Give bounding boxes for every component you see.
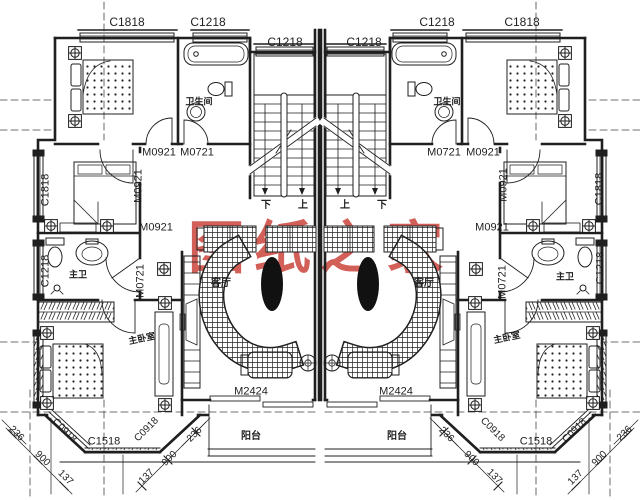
window-code: C1218 bbox=[419, 16, 454, 28]
stair-direction-up: 上 bbox=[340, 201, 350, 211]
stair-direction-down: 下 bbox=[261, 201, 271, 211]
window-code: C1218 bbox=[41, 255, 52, 287]
door-code: M0921 bbox=[499, 168, 510, 202]
dim-value: 900 bbox=[33, 450, 52, 469]
stair-direction-up: 上 bbox=[298, 201, 308, 211]
dim-value: 137 bbox=[485, 468, 504, 487]
door-code: M0921 bbox=[142, 148, 176, 159]
window-code: C0918 bbox=[50, 417, 78, 445]
room-label-balcony: 阳台 bbox=[241, 432, 261, 442]
stair-direction-down: 下 bbox=[377, 201, 387, 211]
door-code: M0921 bbox=[475, 223, 509, 234]
door-code: M2424 bbox=[379, 387, 413, 398]
label-layer: C1818C1218C1218C1218C1218C1818C1818C1818… bbox=[0, 0, 640, 500]
window-code: C0918 bbox=[478, 416, 506, 444]
window-code: C1518 bbox=[88, 437, 120, 448]
dim-value: 236 bbox=[616, 425, 635, 444]
room-label-masterbed: 主卧室 bbox=[128, 332, 156, 346]
dim-value: 900 bbox=[591, 450, 610, 469]
window-code: C1218 bbox=[346, 36, 381, 48]
room-label-bathroom: 卫生间 bbox=[433, 98, 460, 107]
dim-value: 137 bbox=[56, 469, 75, 488]
door-code: M2424 bbox=[234, 387, 268, 398]
door-code: M0721 bbox=[136, 264, 147, 298]
dim-value: 236 bbox=[7, 425, 26, 444]
door-code: M0721 bbox=[498, 265, 509, 299]
window-code: C1218 bbox=[190, 16, 225, 28]
door-code: M0921 bbox=[139, 223, 173, 234]
door-code: M0921 bbox=[466, 148, 500, 159]
window-code: C0918 bbox=[561, 417, 589, 445]
room-label-masterbed: 主卧室 bbox=[493, 331, 521, 345]
window-code: C1818 bbox=[504, 16, 539, 28]
window-code: C1818 bbox=[109, 16, 144, 28]
room-label-living: 客厅 bbox=[211, 279, 231, 289]
dim-value: 137 bbox=[138, 468, 157, 487]
door-code: M0721 bbox=[180, 148, 214, 159]
dim-value: 236 bbox=[186, 426, 205, 445]
dim-value: 137 bbox=[567, 469, 586, 488]
door-code: M0921 bbox=[134, 169, 145, 203]
dim-value: 236 bbox=[437, 426, 456, 445]
dim-value: 900 bbox=[462, 450, 481, 469]
dim-value: 900 bbox=[161, 450, 180, 469]
window-code: C1218 bbox=[267, 36, 302, 48]
room-label-living: 客厅 bbox=[414, 279, 434, 289]
door-code: M0721 bbox=[427, 148, 461, 159]
floor-plan-canvas: 图纸之家 bbox=[0, 0, 640, 500]
window-code: C0918 bbox=[133, 416, 161, 444]
room-label-masterbath: 主卫 bbox=[556, 273, 574, 282]
window-code: C1818 bbox=[41, 174, 52, 206]
window-code: C1518 bbox=[520, 437, 552, 448]
room-label-balcony: 阳台 bbox=[387, 432, 407, 442]
room-label-masterbath: 主卫 bbox=[69, 271, 87, 280]
room-label-bathroom: 卫生间 bbox=[185, 98, 212, 107]
window-code: C1218 bbox=[596, 252, 607, 284]
window-code: C1818 bbox=[595, 173, 606, 205]
